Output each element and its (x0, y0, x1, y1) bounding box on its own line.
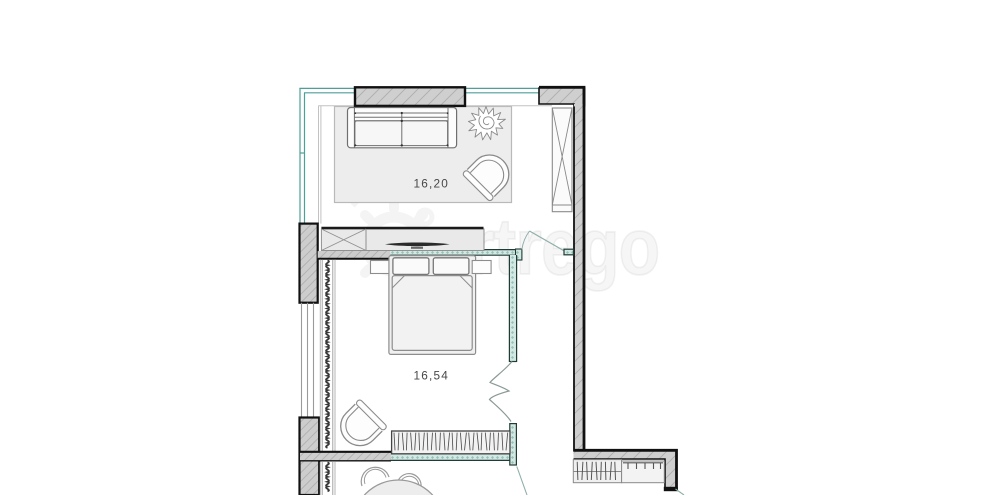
svg-text:16,54: 16,54 (414, 369, 450, 383)
svg-text:16,20: 16,20 (414, 177, 450, 191)
